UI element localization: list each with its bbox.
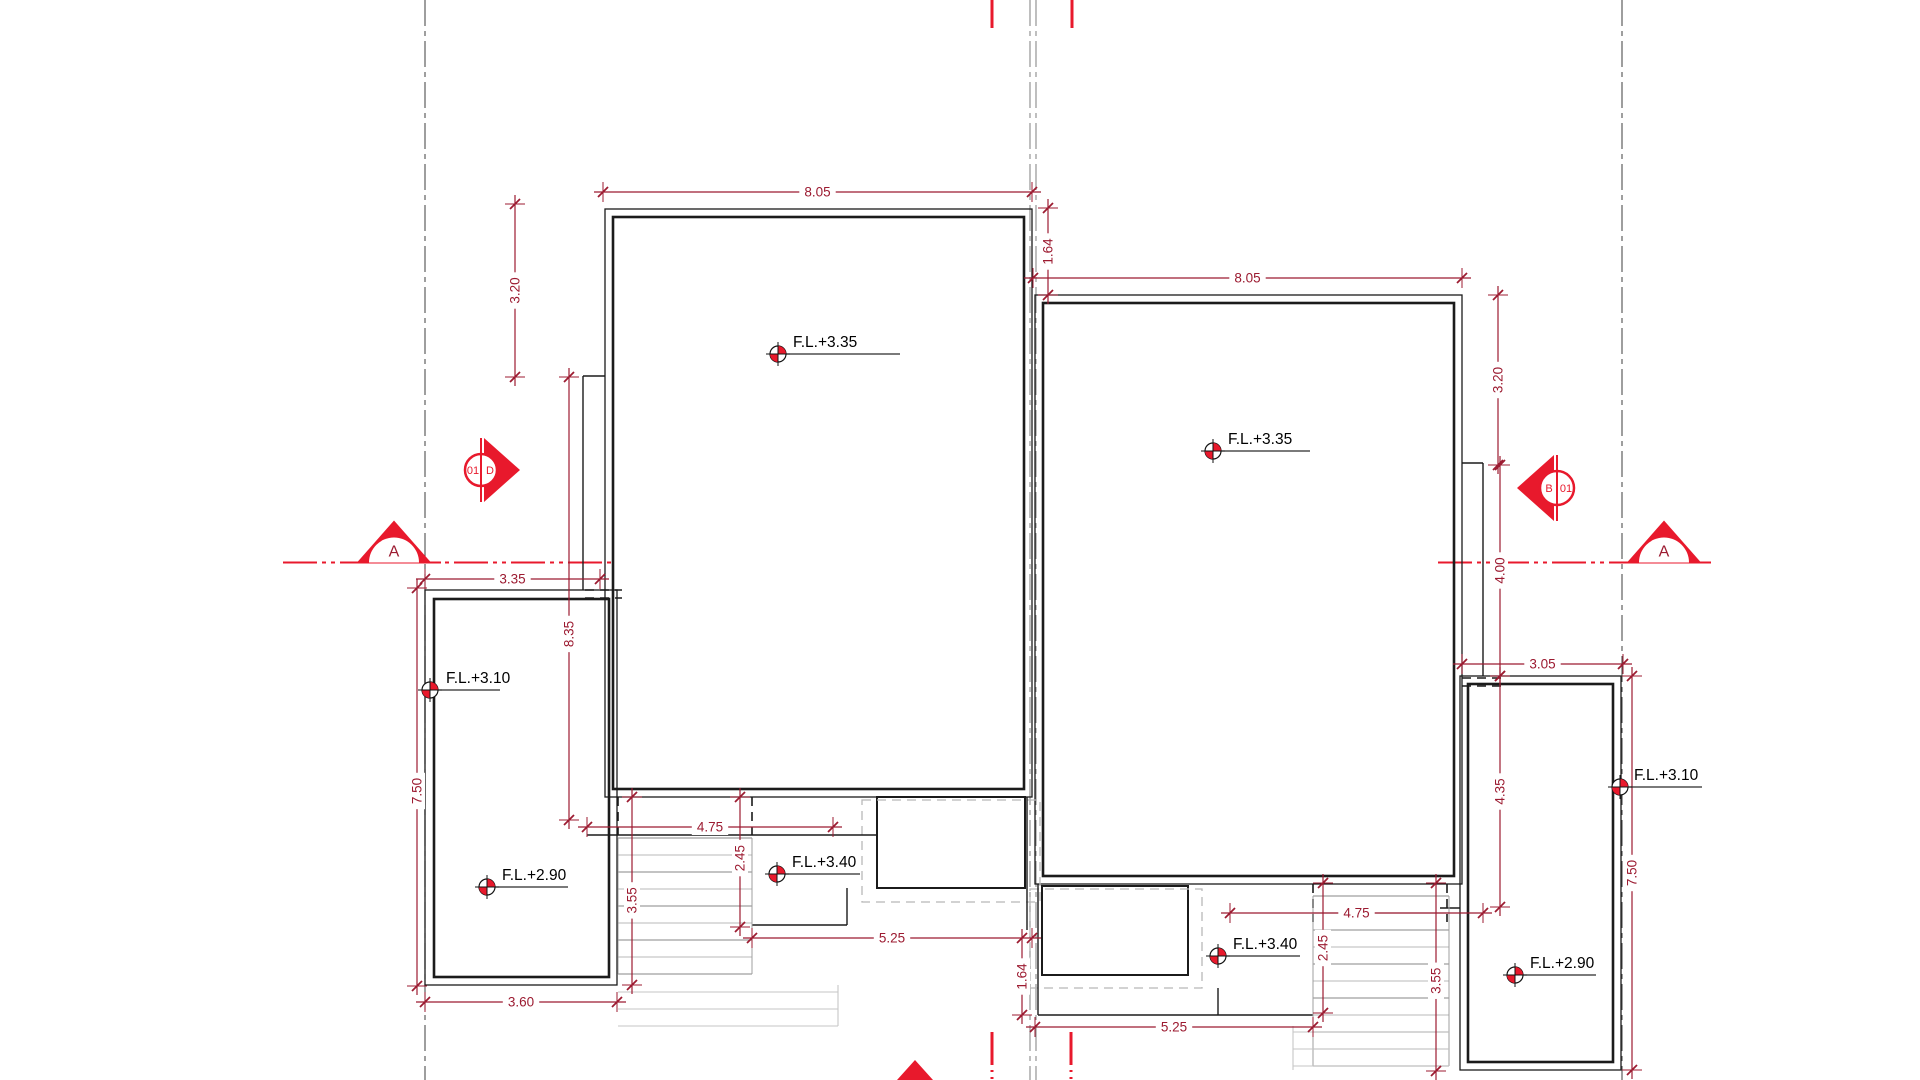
level-marker-text: F.L.+3.35 [793,334,857,351]
level-marker: F.L.+3.35 [1201,431,1310,463]
floor-plan-canvas: AA01DB018.053.201.648.353.357.503.604.75… [0,0,1920,1080]
section-arrow-A: A [1617,521,1711,563]
dimension-text: 5.25 [879,931,905,946]
dimension: 8.05 [594,182,1041,202]
dimension-text: 1.64 [1015,963,1030,990]
dimension: 3.20 [1488,286,1508,474]
dimension-text: 2.45 [1316,935,1331,961]
dimension: 4.35 [1490,667,1510,916]
dimension: 2.45 [730,788,750,936]
level-marker: F.L.+3.10 [418,670,511,702]
marker-left-text: B [1545,483,1552,495]
dimension: 3.35 [416,569,609,589]
dimension: 1.64 [1012,929,1032,1024]
dimension: 3.55 [622,788,642,994]
level-marker-text: F.L.+3.10 [446,670,511,687]
building-left-main [605,209,1032,797]
level-marker: F.L.+3.40 [1206,936,1300,968]
dimension-text: 5.25 [1161,1020,1187,1035]
dimension-text: 3.35 [499,572,525,587]
floor-plan-svg: AA01DB018.053.201.648.353.357.503.604.75… [0,0,1920,1080]
marker-right-text: D [486,465,494,477]
porch-left [425,590,617,985]
dimension-text: 3.55 [1429,968,1444,994]
level-marker-text: F.L.+3.40 [792,854,857,871]
dimension-text: 3.20 [1491,367,1506,393]
dimension: 1.64 [1038,199,1058,304]
dimension: 7.50 [1622,667,1642,1079]
level-marker: F.L.+3.35 [766,334,900,366]
step-platform [877,797,1025,888]
step-platform [1042,886,1188,975]
marker-right-text: 01 [1560,483,1572,495]
level-marker-text: F.L.+3.10 [1634,767,1699,784]
section-arrow-label: A [1659,544,1670,561]
level-marker-text: F.L.+3.40 [1233,936,1298,953]
marker-left-text: 01 [467,465,479,477]
dimension-text: 4.35 [1493,778,1508,804]
level-marker: F.L.+2.90 [1503,955,1596,987]
dimension-text: 3.20 [508,277,523,303]
dimension-text: 7.50 [1625,860,1640,886]
porch-right [1460,676,1621,1070]
level-marker-text: F.L.+2.90 [502,867,567,884]
dimension-text: 3.05 [1529,657,1555,672]
dimension-text: 1.64 [1041,238,1056,265]
section-arrow-label: A [389,544,400,561]
dimension: 3.20 [505,195,525,386]
dimension-text: 8.05 [804,185,830,200]
section-marker-right: B01 [1517,455,1574,521]
dimension-text: 8.05 [1234,271,1260,286]
dimension-text: 4.75 [697,820,723,835]
level-marker: F.L.+2.90 [475,867,568,899]
dimension-text: 7.50 [410,778,425,804]
building-right-main [1035,295,1462,884]
level-marker-text: F.L.+3.35 [1228,431,1292,448]
level-marker-text: F.L.+2.90 [1530,955,1595,972]
dimension-text: 4.00 [1493,557,1508,583]
dimension: 3.60 [416,992,626,1012]
hidden-outline [1030,889,1202,988]
dimension: 7.50 [407,579,427,995]
north-pointer-partial [897,1060,933,1080]
level-marker: F.L.+3.40 [765,854,860,886]
dimension: 8.05 [1024,268,1471,288]
dimension: 4.75 [1221,903,1492,923]
dimension-text: 3.55 [625,887,640,913]
section-arrow-A: A [347,521,441,563]
section-marker-left: 01D [465,438,520,502]
dimension-text: 3.60 [508,995,534,1010]
dimension-text: 4.75 [1343,906,1369,921]
dimension: 5.25 [743,928,1041,948]
dimension-text: 8.35 [562,621,577,647]
dimension: 3.05 [1453,654,1632,674]
dimension-text: 2.45 [733,845,748,871]
dimension: 4.00 [1490,456,1510,685]
hidden-outline [862,800,1040,902]
